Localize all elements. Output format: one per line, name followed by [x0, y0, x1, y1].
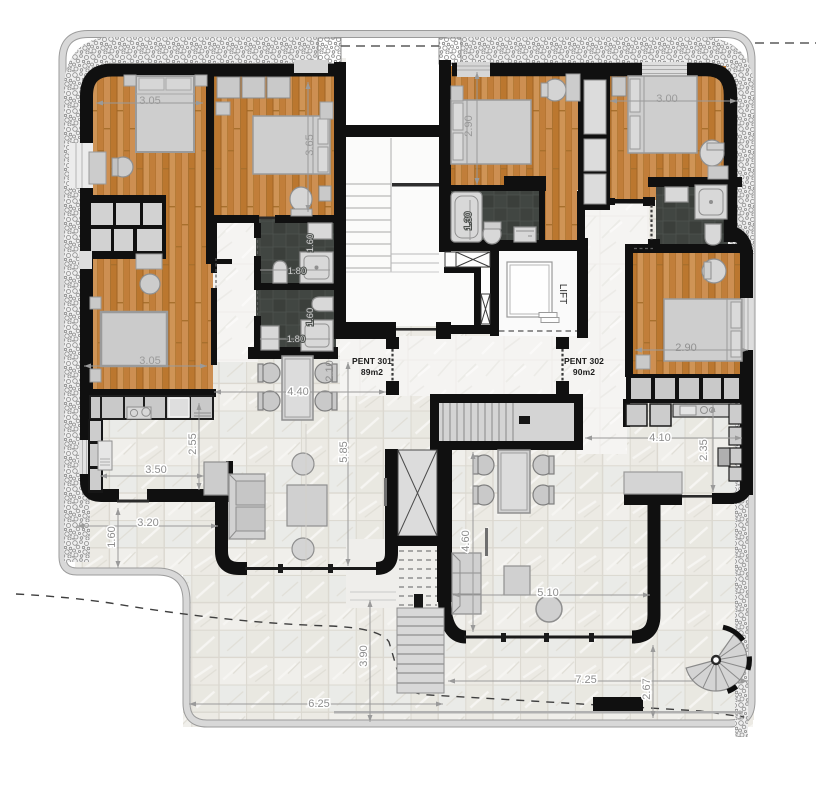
svg-text:1.60: 1.60: [305, 308, 316, 327]
svg-text:1.30: 1.30: [463, 212, 474, 231]
svg-text:1.60: 1.60: [106, 526, 118, 547]
svg-text:2.90: 2.90: [463, 115, 475, 136]
svg-text:4.10: 4.10: [649, 432, 670, 444]
svg-text:89m2: 89m2: [361, 367, 383, 377]
svg-text:1.60: 1.60: [305, 234, 316, 253]
svg-text:3.50: 3.50: [145, 464, 166, 476]
svg-text:5.10: 5.10: [537, 587, 558, 599]
svg-text:2.67: 2.67: [641, 678, 653, 699]
svg-text:1.80: 1.80: [287, 334, 306, 345]
svg-text:2.55: 2.55: [187, 433, 199, 454]
svg-text:90m2: 90m2: [573, 367, 595, 377]
svg-text:3.00: 3.00: [656, 93, 677, 105]
svg-text:5.85: 5.85: [338, 441, 350, 462]
svg-text:1.80: 1.80: [288, 266, 307, 277]
svg-text:3.90: 3.90: [358, 645, 370, 666]
svg-text:3.05: 3.05: [139, 355, 160, 367]
svg-text:6.25: 6.25: [308, 698, 329, 710]
svg-text:4.40: 4.40: [287, 386, 308, 398]
svg-text:PENT 301: PENT 301: [352, 356, 392, 366]
svg-text:3.65: 3.65: [304, 134, 316, 155]
svg-text:7.25: 7.25: [575, 674, 596, 686]
svg-text:2.90: 2.90: [675, 342, 696, 354]
svg-text:4.60: 4.60: [460, 530, 472, 551]
svg-text:2.35: 2.35: [698, 439, 710, 460]
svg-text:3.20: 3.20: [137, 517, 158, 529]
svg-text:LIFT: LIFT: [557, 284, 568, 305]
svg-text:3.05: 3.05: [139, 95, 160, 107]
svg-text:PENT 302: PENT 302: [564, 356, 604, 366]
svg-text:2.10: 2.10: [324, 360, 336, 381]
